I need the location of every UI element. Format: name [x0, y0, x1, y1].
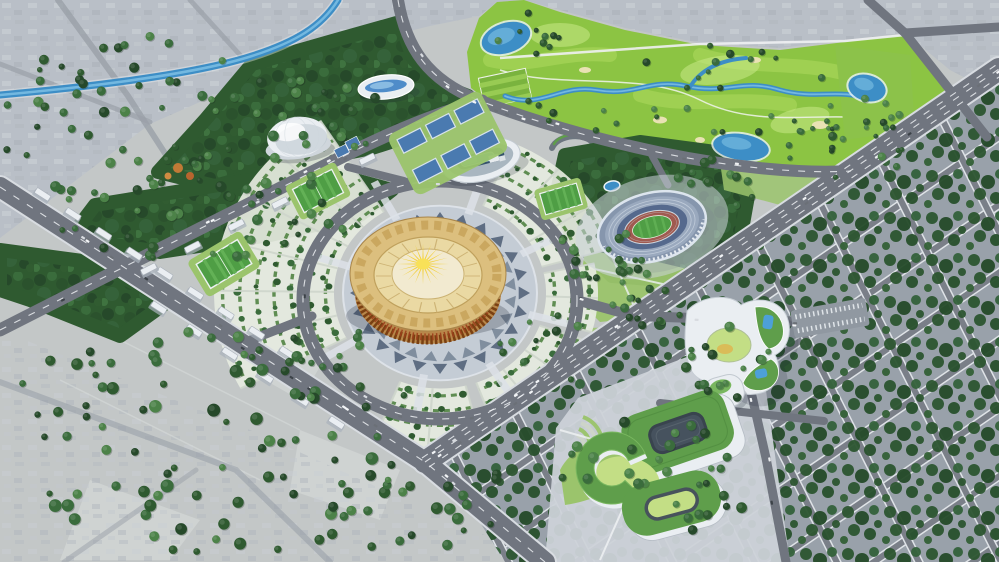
tree-highlight [589, 453, 594, 458]
tree-highlight [607, 247, 610, 250]
tree-highlight [134, 186, 138, 190]
tree-highlight [170, 547, 174, 551]
tree-highlight [70, 515, 75, 520]
tree-highlight [281, 474, 284, 477]
tree-highlight [375, 434, 378, 437]
tree-highlight [453, 514, 458, 519]
tree-highlight [322, 90, 325, 93]
garden-tree [536, 163, 541, 168]
tree-highlight [233, 253, 237, 257]
tree-highlight [37, 78, 41, 82]
tree-highlight [897, 112, 900, 115]
tree-highlight [89, 361, 92, 364]
tree-highlight [115, 44, 119, 48]
tree-highlight [292, 89, 297, 94]
tree-highlight [788, 156, 790, 158]
tree-highlight [675, 174, 679, 178]
tree-highlight [633, 258, 636, 261]
tree-highlight [560, 475, 564, 479]
tree-highlight [344, 489, 349, 494]
garden-tree [290, 302, 297, 308]
tree-highlight [682, 364, 687, 369]
tree-highlight [153, 357, 158, 362]
garden-tree [525, 191, 529, 195]
tree-highlight [311, 388, 316, 393]
golden-central-arena [346, 217, 510, 344]
tree-highlight [446, 505, 451, 510]
garden-tree [438, 406, 445, 412]
garden-tree [457, 407, 461, 411]
tree-highlight [337, 354, 340, 357]
tree-highlight [639, 322, 643, 326]
tree-highlight [536, 103, 539, 106]
tree-highlight [100, 108, 105, 113]
tree-highlight [550, 110, 554, 114]
tree-highlight [209, 97, 212, 100]
tree-highlight [282, 368, 286, 372]
tree-highlight [363, 404, 367, 408]
tree-highlight [610, 302, 613, 305]
tree-highlight [894, 164, 897, 167]
tree-highlight [76, 76, 80, 80]
tree-highlight [811, 127, 813, 129]
tree-highlight [580, 272, 583, 275]
tree-highlight [518, 30, 520, 32]
tree-highlight [830, 146, 833, 149]
tree-highlight [724, 454, 728, 458]
tree-highlight [555, 313, 558, 316]
tree-highlight [113, 483, 117, 487]
garden-tree [543, 330, 551, 337]
tree-highlight [264, 473, 269, 478]
tree-highlight [231, 94, 235, 98]
tree-highlight [182, 157, 185, 160]
roof-inner-disc [392, 249, 464, 299]
tree-highlight [553, 328, 557, 332]
tree-highlight [724, 504, 727, 507]
tree-highlight [34, 98, 39, 103]
garden-tree [322, 305, 329, 311]
tree-highlight [620, 270, 624, 274]
tree-highlight [275, 547, 278, 550]
tree-highlight [291, 336, 294, 339]
tree-highlight [332, 457, 335, 460]
tree-highlight [258, 365, 263, 370]
tree-highlight [834, 175, 836, 177]
autumn-tree [165, 173, 172, 180]
green [530, 23, 590, 47]
garden-tree [312, 322, 316, 326]
tree-highlight [149, 243, 154, 248]
tree-highlight [257, 79, 261, 83]
garden-tree [543, 254, 550, 260]
tree-highlight [135, 158, 139, 162]
tree-highlight [834, 125, 837, 128]
tree-highlight [432, 504, 437, 509]
sand-bunker [695, 137, 705, 143]
tree-highlight [696, 382, 700, 386]
tree-highlight [766, 349, 769, 352]
masterplan-scene [0, 0, 999, 562]
tree-highlight [616, 235, 620, 239]
tree-highlight [348, 507, 352, 511]
tree-highlight [620, 418, 625, 423]
tree-highlight [130, 64, 135, 69]
tree-highlight [745, 178, 749, 182]
tree-highlight [83, 403, 86, 406]
garden-tree [239, 316, 245, 322]
tree-highlight [100, 45, 104, 49]
tree-highlight [164, 157, 168, 161]
tree-highlight [140, 407, 144, 411]
tree-highlight [259, 445, 263, 449]
tree-highlight [67, 197, 70, 200]
tree-highlight [388, 462, 392, 466]
tree-highlight [121, 108, 126, 113]
tree-highlight [787, 143, 790, 146]
tree-highlight [243, 186, 247, 190]
tree-highlight [319, 200, 323, 204]
tree-highlight [864, 119, 867, 122]
tree-highlight [705, 388, 709, 392]
sun-core [416, 259, 430, 270]
tree-highlight [147, 33, 151, 37]
tree-highlight [709, 466, 712, 469]
garden-tree [233, 289, 241, 296]
tree-highlight [718, 466, 722, 470]
tree-highlight [718, 86, 721, 89]
tree-highlight [107, 159, 112, 164]
tree-highlight [341, 513, 345, 517]
tree-highlight [628, 296, 631, 299]
tree-highlight [696, 511, 700, 515]
tree-highlight [165, 471, 169, 475]
garden-tree [297, 247, 304, 254]
tree-crown [34, 124, 40, 130]
tree-highlight [279, 113, 283, 117]
tree-highlight [881, 120, 884, 123]
tree-highlight [534, 51, 537, 54]
tree-highlight [173, 144, 176, 147]
tree-highlight [59, 64, 62, 67]
tree-highlight [208, 334, 212, 338]
tree-highlight [594, 128, 597, 131]
tree-highlight [879, 154, 883, 158]
autumn-tree [186, 172, 194, 180]
tree-highlight [741, 366, 744, 369]
tree-highlight [234, 333, 239, 338]
tree-highlight [253, 216, 258, 221]
tree-highlight [252, 414, 258, 420]
tree-highlight [727, 171, 731, 175]
tree-highlight [685, 106, 688, 109]
tree-highlight [54, 408, 58, 412]
tree-highlight [172, 465, 175, 468]
tree-highlight [236, 539, 241, 544]
tree-highlight [738, 504, 743, 509]
vehicle [793, 322, 797, 324]
tree-highlight [293, 352, 298, 357]
tree-highlight [380, 488, 385, 493]
tree-highlight [297, 78, 301, 82]
tree-highlight [293, 437, 296, 440]
tree-highlight [87, 349, 91, 353]
tree-highlight [166, 78, 170, 82]
tree-highlight [199, 156, 202, 159]
tree-highlight [290, 491, 294, 495]
tree-crown [883, 125, 889, 131]
tree-highlight [354, 334, 358, 338]
tree-highlight [250, 355, 253, 358]
tree-highlight [63, 501, 69, 507]
tree-highlight [689, 526, 693, 530]
garden-tree [518, 219, 522, 223]
garden-tree [459, 391, 467, 398]
tree-highlight [38, 68, 40, 70]
garden-tree [332, 329, 339, 336]
tree-highlight [687, 422, 691, 426]
sand-bunker [579, 67, 591, 73]
tree-highlight [444, 483, 449, 488]
tree-highlight [146, 501, 151, 506]
tree-highlight [288, 78, 293, 83]
tree-highlight [573, 442, 578, 447]
garden-tree [273, 262, 278, 267]
tree-highlight [291, 390, 296, 395]
tree-highlight [194, 549, 197, 552]
tree-highlight [799, 129, 802, 132]
tree-crown [223, 419, 229, 425]
tree-highlight [666, 441, 671, 446]
garden-tree [552, 291, 557, 296]
tree-crown [336, 353, 342, 359]
tree-highlight [217, 182, 222, 187]
tree-highlight [356, 330, 359, 333]
tree-highlight [108, 360, 112, 364]
tree-highlight [120, 147, 123, 150]
tree-highlight [80, 80, 84, 84]
garden-tree [320, 275, 326, 280]
tree-highlight [760, 50, 763, 53]
tree-highlight [234, 498, 239, 503]
tree-highlight [891, 125, 894, 128]
tree-highlight [584, 475, 589, 480]
tree-highlight [656, 457, 659, 460]
tree-highlight [709, 351, 714, 356]
tree-highlight [313, 104, 317, 108]
tree-highlight [819, 75, 822, 78]
tree-highlight [247, 379, 252, 384]
tree-highlight [308, 210, 312, 214]
tree-highlight [560, 238, 563, 241]
tree-highlight [69, 126, 73, 130]
autumn-tree [173, 163, 183, 173]
tree-highlight [720, 492, 724, 496]
garden-tree [273, 306, 278, 310]
tree-highlight [68, 187, 72, 191]
tree-highlight [330, 123, 334, 127]
tree-highlight [526, 99, 529, 102]
tree-highlight [316, 536, 321, 541]
tree-highlight [634, 480, 639, 485]
tree-highlight [243, 252, 247, 256]
tree-highlight [720, 130, 723, 133]
tree-highlight [369, 543, 373, 547]
tree-highlight [140, 487, 145, 492]
garden-tree [493, 205, 498, 209]
tree-highlight [652, 107, 655, 110]
garden-tree [556, 341, 560, 345]
garden-tree [485, 381, 492, 387]
tree-highlight [333, 94, 336, 97]
tree-highlight [688, 181, 692, 185]
garden-tree [424, 407, 428, 411]
tree-highlight [286, 359, 290, 363]
tree-highlight [61, 109, 65, 113]
tree-highlight [308, 173, 312, 177]
tree-highlight [159, 180, 162, 183]
tree-highlight [793, 119, 795, 121]
tree-highlight [329, 503, 334, 508]
tree-highlight [401, 393, 404, 396]
tree-highlight [73, 226, 76, 229]
tree-highlight [299, 358, 302, 361]
tree-highlight [282, 241, 285, 244]
tree-highlight [733, 174, 737, 178]
tree-highlight [269, 132, 274, 137]
tree-highlight [192, 161, 195, 164]
tree-highlight [689, 354, 693, 358]
tree-highlight [889, 115, 892, 118]
tree-highlight [575, 323, 579, 327]
tree-highlight [121, 42, 125, 46]
tree-highlight [220, 520, 225, 525]
tree-highlight [749, 57, 752, 60]
tree-highlight [177, 525, 182, 530]
tree-highlight [151, 256, 154, 259]
garden-tree [254, 284, 259, 288]
tree-highlight [509, 339, 513, 343]
tree-highlight [706, 70, 708, 72]
garden-tree [434, 392, 441, 398]
tree-highlight [100, 424, 103, 427]
tree-highlight [367, 471, 372, 476]
tree-highlight [750, 195, 753, 198]
tree-highlight [547, 119, 550, 122]
tree-crown [873, 134, 878, 139]
tree-highlight [635, 266, 639, 270]
tree-highlight [161, 382, 164, 385]
tree-highlight [150, 351, 155, 356]
tree-highlight [328, 530, 333, 535]
tree-highlight [226, 147, 229, 150]
tree-highlight [697, 482, 700, 485]
tree-highlight [602, 109, 604, 111]
tree-highlight [262, 179, 267, 184]
tree-highlight [73, 90, 77, 94]
tree-highlight [213, 536, 217, 540]
tree-highlight [726, 323, 731, 328]
tree-highlight [621, 305, 625, 309]
tree-crown [706, 69, 711, 74]
tree-highlight [168, 212, 173, 217]
tree-highlight [701, 159, 705, 163]
aerial-render [0, 0, 999, 562]
tree-highlight [142, 511, 147, 516]
tree-highlight [338, 133, 342, 137]
tree-highlight [500, 349, 504, 353]
tree-highlight [727, 51, 731, 55]
tree-highlight [334, 364, 338, 368]
tree-highlight [276, 189, 279, 192]
tree-highlight [625, 470, 630, 475]
tree-highlight [663, 468, 667, 472]
tree-highlight [900, 148, 902, 150]
tree-highlight [211, 251, 214, 254]
garden-tree [287, 260, 294, 267]
tree-highlight [329, 432, 333, 436]
tree-highlight [528, 320, 530, 322]
tree-highlight [862, 96, 865, 99]
tree-highlight [708, 44, 711, 47]
tree-highlight [135, 208, 138, 211]
garden-tree [251, 366, 256, 371]
tree-highlight [42, 104, 46, 108]
tree-crown [711, 129, 717, 135]
vehicle [695, 319, 699, 321]
tree-highlight [704, 511, 708, 515]
tree-highlight [205, 153, 209, 157]
garden-tree [370, 212, 374, 216]
tree-highlight [92, 190, 95, 193]
tree-highlight [308, 394, 312, 398]
tree-highlight [534, 339, 536, 341]
tree-highlight [756, 129, 759, 132]
garden-tree [318, 338, 323, 343]
tree-highlight [700, 381, 704, 385]
tree-highlight [896, 149, 898, 151]
tree-highlight [73, 360, 78, 365]
tree-highlight [883, 101, 886, 104]
tree-highlight [693, 437, 696, 440]
tree-crown [213, 108, 219, 114]
tree-highlight [271, 154, 275, 158]
tree-highlight [463, 501, 467, 505]
vehicle [304, 294, 306, 298]
tree-highlight [126, 234, 130, 238]
tree-highlight [47, 357, 52, 362]
tree-highlight [320, 364, 323, 367]
tree-highlight [498, 342, 500, 344]
tree-highlight [406, 482, 410, 486]
tree-highlight [758, 356, 762, 360]
tree-highlight [521, 359, 524, 362]
tree-highlight [534, 29, 536, 31]
tree-highlight [35, 412, 38, 415]
tree-highlight [50, 501, 56, 507]
tree-highlight [685, 515, 689, 519]
tree-highlight [64, 433, 68, 437]
tree-highlight [254, 111, 257, 114]
tree-highlight [623, 231, 627, 235]
garden-tree [532, 347, 536, 351]
tree-highlight [367, 454, 373, 460]
tree-highlight [93, 373, 96, 376]
garden-tree [548, 279, 552, 283]
tree-highlight [150, 532, 155, 537]
tree-highlight [343, 84, 347, 88]
tree-highlight [42, 434, 45, 437]
